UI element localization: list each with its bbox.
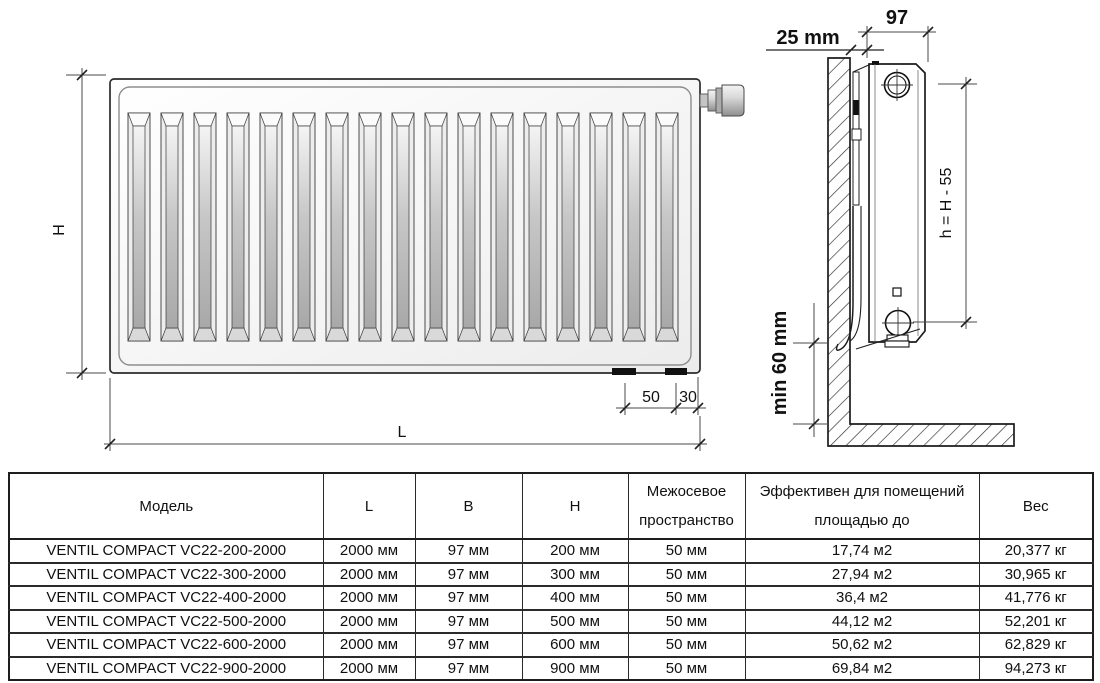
table-cell: 27,94 м2 xyxy=(745,563,979,587)
table-cell: VENTIL COMPACT VC22-200-2000 xyxy=(9,539,323,563)
table-cell: 97 мм xyxy=(415,633,522,657)
radiator-slat xyxy=(623,113,645,341)
column-header: Модель xyxy=(9,473,323,539)
table-cell: VENTIL COMPACT VC22-600-2000 xyxy=(9,633,323,657)
radiator-slat xyxy=(557,113,579,341)
column-header: Вес xyxy=(979,473,1093,539)
radiator-slat xyxy=(128,113,150,341)
dim-h-formula-label: h = H - 55 xyxy=(938,168,955,239)
table-header-row: МодельLBHМежосевое пространствоЭффективе… xyxy=(9,473,1093,539)
table-cell: 50 мм xyxy=(628,657,745,681)
radiator-slat xyxy=(161,113,183,341)
dim-h-formula: h = H - 55 xyxy=(913,77,977,329)
drain-plug xyxy=(893,288,901,296)
dim-H-label: H xyxy=(51,224,68,236)
table-cell: 97 мм xyxy=(415,539,522,563)
top-connection-circle xyxy=(881,69,913,101)
table-cell: 2000 мм xyxy=(323,657,415,681)
table-cell: VENTIL COMPACT VC22-300-2000 xyxy=(9,563,323,587)
dim-97-label: 97 xyxy=(886,7,908,29)
dim-min60-label: min 60 mm xyxy=(769,311,791,415)
thermostatic-valve xyxy=(700,85,744,116)
connection-stub-right xyxy=(665,368,687,375)
table-cell: 20,377 кг xyxy=(979,539,1093,563)
table-row: VENTIL COMPACT VC22-300-20002000 мм97 мм… xyxy=(9,563,1093,587)
dim-50-label: 50 xyxy=(642,389,660,406)
table-cell: 200 мм xyxy=(522,539,628,563)
connection-stub-left xyxy=(612,368,636,375)
bottom-connection-circle xyxy=(882,307,914,347)
radiator-slat xyxy=(194,113,216,341)
column-header: Межосевое пространство xyxy=(628,473,745,539)
table-cell: 50 мм xyxy=(628,633,745,657)
dim-L: L xyxy=(104,378,707,451)
radiator-slat xyxy=(326,113,348,341)
column-header: B xyxy=(415,473,522,539)
table-row: VENTIL COMPACT VC22-400-20002000 мм97 мм… xyxy=(9,586,1093,610)
table-cell: VENTIL COMPACT VC22-500-2000 xyxy=(9,610,323,634)
column-header: Эффективен для помещений площадью до xyxy=(745,473,979,539)
table-row: VENTIL COMPACT VC22-600-20002000 мм97 мм… xyxy=(9,633,1093,657)
radiator-slat xyxy=(293,113,315,341)
table-cell: 500 мм xyxy=(522,610,628,634)
dim-25mm-label: 25 mm xyxy=(776,27,839,49)
table-cell: 50 мм xyxy=(628,539,745,563)
dim-L-label: L xyxy=(398,424,407,441)
table-cell: 300 мм xyxy=(522,563,628,587)
table-cell: 69,84 м2 xyxy=(745,657,979,681)
column-header: L xyxy=(323,473,415,539)
radiator-slat xyxy=(590,113,612,341)
radiator-slat xyxy=(491,113,513,341)
table-cell: 97 мм xyxy=(415,610,522,634)
table-cell: 900 мм xyxy=(522,657,628,681)
radiator-slat xyxy=(260,113,282,341)
table-cell: 36,4 м2 xyxy=(745,586,979,610)
table-cell: 62,829 кг xyxy=(979,633,1093,657)
dim-H: H xyxy=(51,68,106,380)
table-cell: 600 мм xyxy=(522,633,628,657)
table-cell: 2000 мм xyxy=(323,563,415,587)
table-cell: 52,201 кг xyxy=(979,610,1093,634)
table-cell: 2000 мм xyxy=(323,633,415,657)
table-cell: 41,776 кг xyxy=(979,586,1093,610)
radiator-slat xyxy=(359,113,381,341)
table-cell: 30,965 кг xyxy=(979,563,1093,587)
radiator-slat xyxy=(524,113,546,341)
radiator-slat xyxy=(425,113,447,341)
table-cell: 2000 мм xyxy=(323,539,415,563)
radiator-slat xyxy=(458,113,480,341)
column-header: H xyxy=(522,473,628,539)
table-cell: 94,273 кг xyxy=(979,657,1093,681)
table-cell: 2000 мм xyxy=(323,610,415,634)
table-cell: VENTIL COMPACT VC22-400-2000 xyxy=(9,586,323,610)
radiator-slat xyxy=(227,113,249,341)
spec-table: МодельLBHМежосевое пространствоЭффективе… xyxy=(8,472,1094,681)
table-cell: 50 мм xyxy=(628,586,745,610)
radiator-technical-drawing: H 50 30 L xyxy=(0,0,1100,470)
table-row: VENTIL COMPACT VC22-200-20002000 мм97 мм… xyxy=(9,539,1093,563)
table-cell: 400 мм xyxy=(522,586,628,610)
table-cell: VENTIL COMPACT VC22-900-2000 xyxy=(9,657,323,681)
table-cell: 17,74 м2 xyxy=(745,539,979,563)
table-cell: 2000 мм xyxy=(323,586,415,610)
side-view: 97 25 mm h = H - 55 xyxy=(766,7,1014,446)
table-cell: 97 мм xyxy=(415,657,522,681)
table-cell: 50 мм xyxy=(628,610,745,634)
dim-30-label: 30 xyxy=(679,389,697,406)
radiator-slat xyxy=(392,113,414,341)
table-cell: 44,12 м2 xyxy=(745,610,979,634)
table-cell: 50 мм xyxy=(628,563,745,587)
dim-50-30: 50 30 xyxy=(616,377,706,415)
dim-25mm: 25 mm xyxy=(766,27,884,55)
table-row: VENTIL COMPACT VC22-900-20002000 мм97 мм… xyxy=(9,657,1093,681)
technical-drawing-page: H 50 30 L xyxy=(0,0,1100,683)
table-cell: 97 мм xyxy=(415,563,522,587)
dim-min60: min 60 mm xyxy=(769,303,828,437)
table-cell: 97 мм xyxy=(415,586,522,610)
table-row: VENTIL COMPACT VC22-500-20002000 мм97 мм… xyxy=(9,610,1093,634)
front-view: H 50 30 L xyxy=(51,68,744,451)
radiator-slat xyxy=(656,113,678,341)
dim-97: 97 xyxy=(858,7,936,62)
radiator-slats xyxy=(128,113,678,341)
table-cell: 50,62 м2 xyxy=(745,633,979,657)
